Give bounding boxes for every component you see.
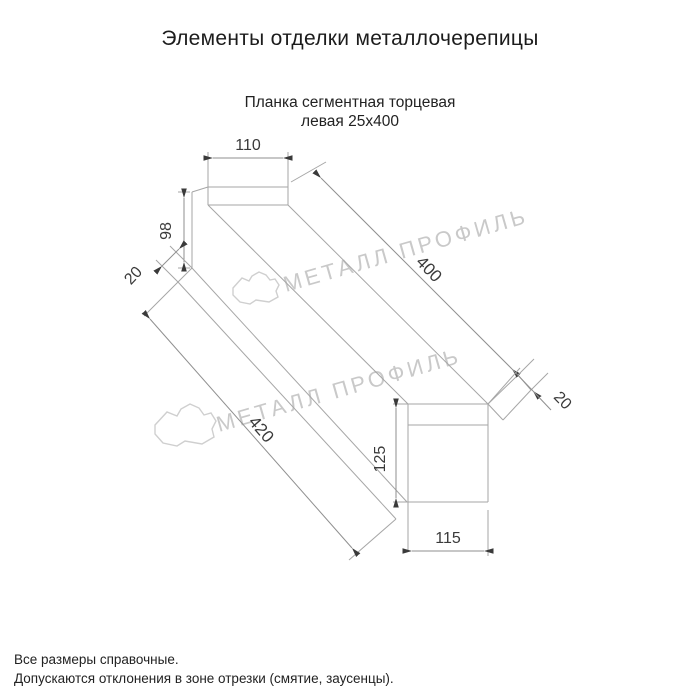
dim-label-right-hem: 20 bbox=[550, 389, 575, 414]
watermark-logo-icon bbox=[155, 404, 216, 446]
dimension-labels: 110 98 20 400 20 420 125 115 bbox=[121, 137, 574, 547]
dim-label-top-flange-width: 110 bbox=[235, 137, 261, 154]
footer-notes: Все размеры справочные. Допускаются откл… bbox=[14, 650, 394, 688]
watermark-logo-icon bbox=[233, 272, 279, 304]
catalog-page: Элементы отделки металлочерепицы Планка … bbox=[0, 0, 700, 700]
dim-label-left-end-height: 98 bbox=[158, 222, 175, 240]
watermark-upper: МЕТАЛЛ ПРОФИЛЬ bbox=[233, 203, 531, 304]
dim-label-bottom-flange-width: 115 bbox=[435, 530, 461, 547]
dim-label-right-end-height: 125 bbox=[372, 446, 389, 473]
technical-drawing: МЕТАЛЛ ПРОФИЛЬ МЕТАЛЛ ПРОФИЛЬ bbox=[0, 0, 700, 700]
footer-note-2: Допускаются отклонения в зоне отрезки (с… bbox=[14, 669, 394, 688]
dim-label-left-hem: 20 bbox=[121, 264, 146, 289]
watermark-text-upper: МЕТАЛЛ ПРОФИЛЬ bbox=[280, 203, 530, 297]
footer-note-1: Все размеры справочные. bbox=[14, 650, 394, 669]
watermark-lower: МЕТАЛЛ ПРОФИЛЬ bbox=[155, 343, 464, 446]
